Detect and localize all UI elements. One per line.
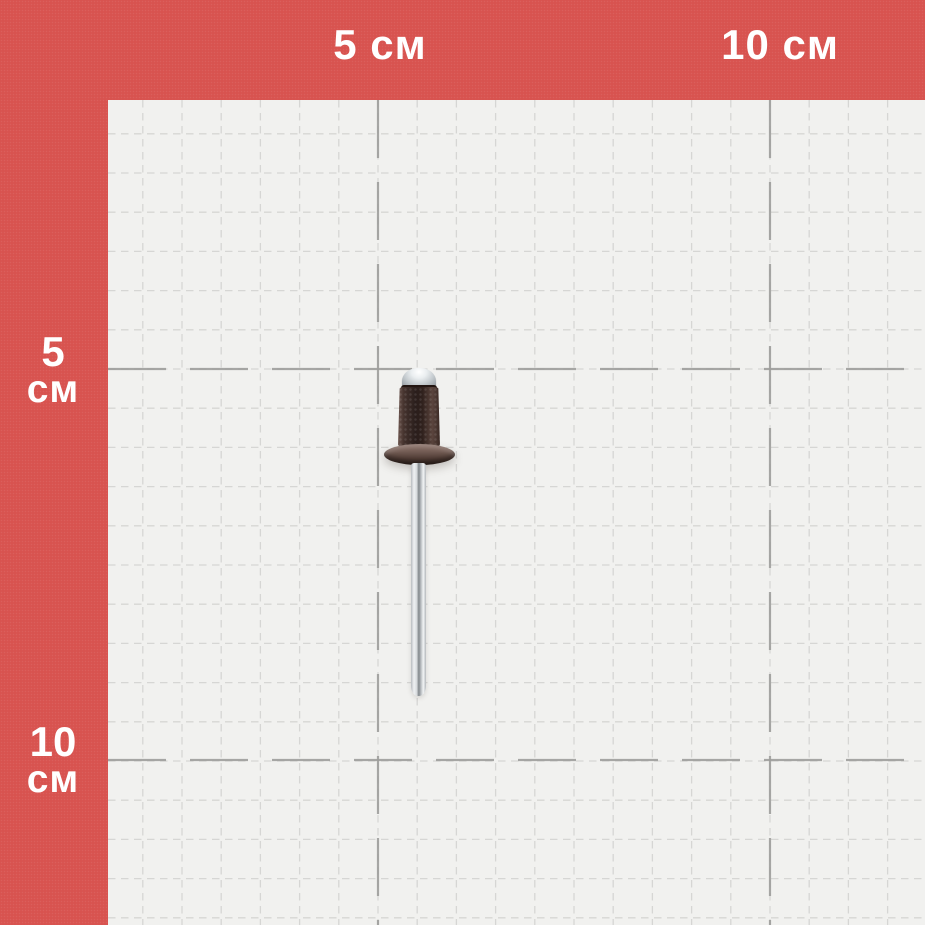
ruler-label-left-10cm-unit: см: [27, 761, 80, 797]
ruler-label-left-5cm: 5 см: [27, 333, 80, 408]
ruler-label-left-5cm-unit: см: [27, 371, 80, 407]
ruler-label-top-5cm: 5 см: [333, 21, 426, 69]
rivet-body: [398, 387, 440, 446]
ruler-label-left-10cm: 10 см: [27, 723, 80, 798]
blind-rivet: [384, 367, 456, 699]
measurement-grid: [0, 0, 925, 925]
rivet-mandrel-pin: [411, 463, 426, 696]
product-photo-measuring-mat: 5 см 10 см 5 см 10 см: [0, 0, 925, 925]
rivet-flange: [384, 444, 455, 465]
ruler-label-top-10cm: 10 см: [721, 21, 839, 69]
